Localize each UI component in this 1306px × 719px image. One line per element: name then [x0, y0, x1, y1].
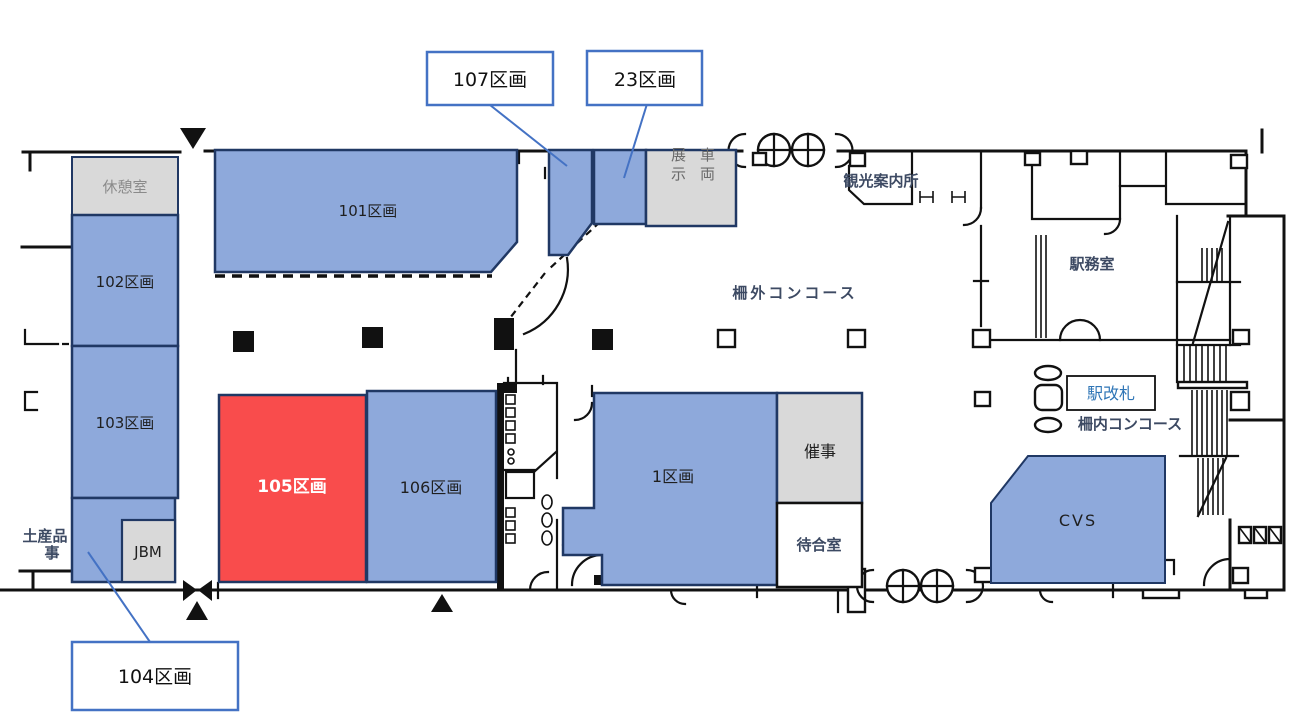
exhibit-vehicle-box [646, 150, 736, 226]
region-1[interactable] [563, 393, 777, 585]
entrance-arrow-bottom-left-icon [183, 580, 212, 620]
souvenir-label-line2: 事 [44, 544, 59, 562]
souvenir-label-line1: 土産品 [22, 527, 67, 545]
exhibit-label-col1: 展示 [669, 147, 687, 185]
region-102-label: 102区画 [96, 273, 155, 291]
region-106-label: 106区画 [400, 478, 463, 497]
event-space-label: 催事 [804, 442, 836, 461]
region-107[interactable] [549, 150, 592, 255]
rest-room-label: 休憩室 [102, 178, 147, 196]
callout-107-label: 107区画 [453, 69, 527, 91]
cvs-label: CVS [1059, 511, 1097, 530]
region-103-label: 103区画 [96, 414, 155, 432]
station-floor-plan: 休憩室 101区画 102区画 103区画 JBM 105区画 106区画 1区… [0, 0, 1306, 719]
station-office-walls [964, 151, 1247, 340]
region-1-label: 1区画 [652, 467, 694, 486]
entrance-arrow-icon [180, 128, 206, 149]
gate-machines-icon [1035, 366, 1062, 432]
exhibit-label-col2: 車両 [698, 147, 716, 185]
region-105-label: 105区画 [257, 477, 327, 497]
tourist-info-label: 観光案内所 [843, 172, 918, 190]
restroom-block [497, 350, 557, 590]
station-gate-group: 駅改札 [1067, 376, 1155, 410]
callout-104-label: 104区画 [118, 666, 192, 688]
region-23[interactable] [594, 150, 646, 224]
top-ticket-gate-icon [729, 134, 853, 167]
regions [72, 150, 1165, 587]
floor-plan-svg: 休憩室 101区画 102区画 103区画 JBM 105区画 106区画 1区… [0, 0, 1306, 719]
concourse-outside-label: 柵外コンコース [732, 284, 857, 302]
station-gate-label: 駅改札 [1087, 384, 1135, 403]
region-101-label: 101区画 [339, 202, 398, 220]
concourse-inside-label: 柵内コンコース [1078, 415, 1182, 433]
stairs [1177, 216, 1249, 516]
callout-23-label: 23区画 [614, 69, 676, 91]
entrance-arrow-bottom-center-icon [431, 594, 453, 612]
station-office-label: 駅務室 [1068, 255, 1114, 273]
waiting-room-label: 待合室 [796, 536, 841, 554]
jbm-label: JBM [133, 543, 162, 561]
